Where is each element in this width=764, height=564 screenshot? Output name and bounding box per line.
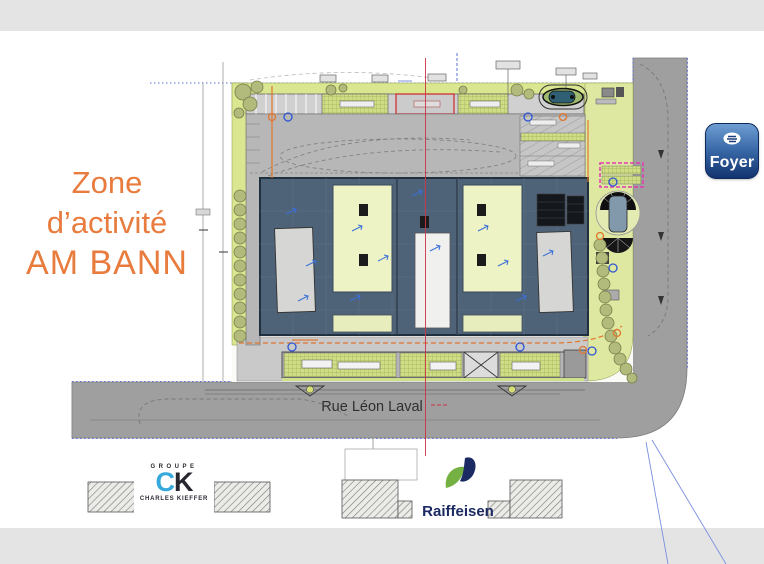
corner-survey-lines (646, 440, 726, 564)
ck-logo: GROUPE CK CHARLES KIEFFER (134, 454, 214, 514)
foyer-emblem-icon (721, 131, 743, 146)
zone-title-line3: AM BANN (14, 243, 200, 283)
street-label: Rue Léon Laval (321, 399, 423, 415)
raiffeisen-logo: Raiffeisen (408, 455, 508, 520)
ck-name-text: CHARLES KIEFFER (134, 496, 214, 502)
zone-title-line1: Zone (14, 163, 200, 203)
zone-title-line2: d’activité (14, 203, 200, 243)
ck-letter-c: C (156, 467, 175, 497)
slide: Rue Léon Laval Zone d’activité AM BANN F… (0, 0, 764, 564)
foyer-wordmark: Foyer (710, 154, 755, 172)
main-building-shape (260, 178, 588, 335)
zone-title: Zone d’activité AM BANN (14, 163, 200, 283)
raiffeisen-leaf-icon (436, 455, 480, 497)
ck-letter-k: K (174, 467, 193, 497)
raiffeisen-wordmark: Raiffeisen (408, 503, 508, 520)
ck-monogram: CK (134, 470, 214, 494)
foyer-logo: Foyer (705, 123, 759, 179)
